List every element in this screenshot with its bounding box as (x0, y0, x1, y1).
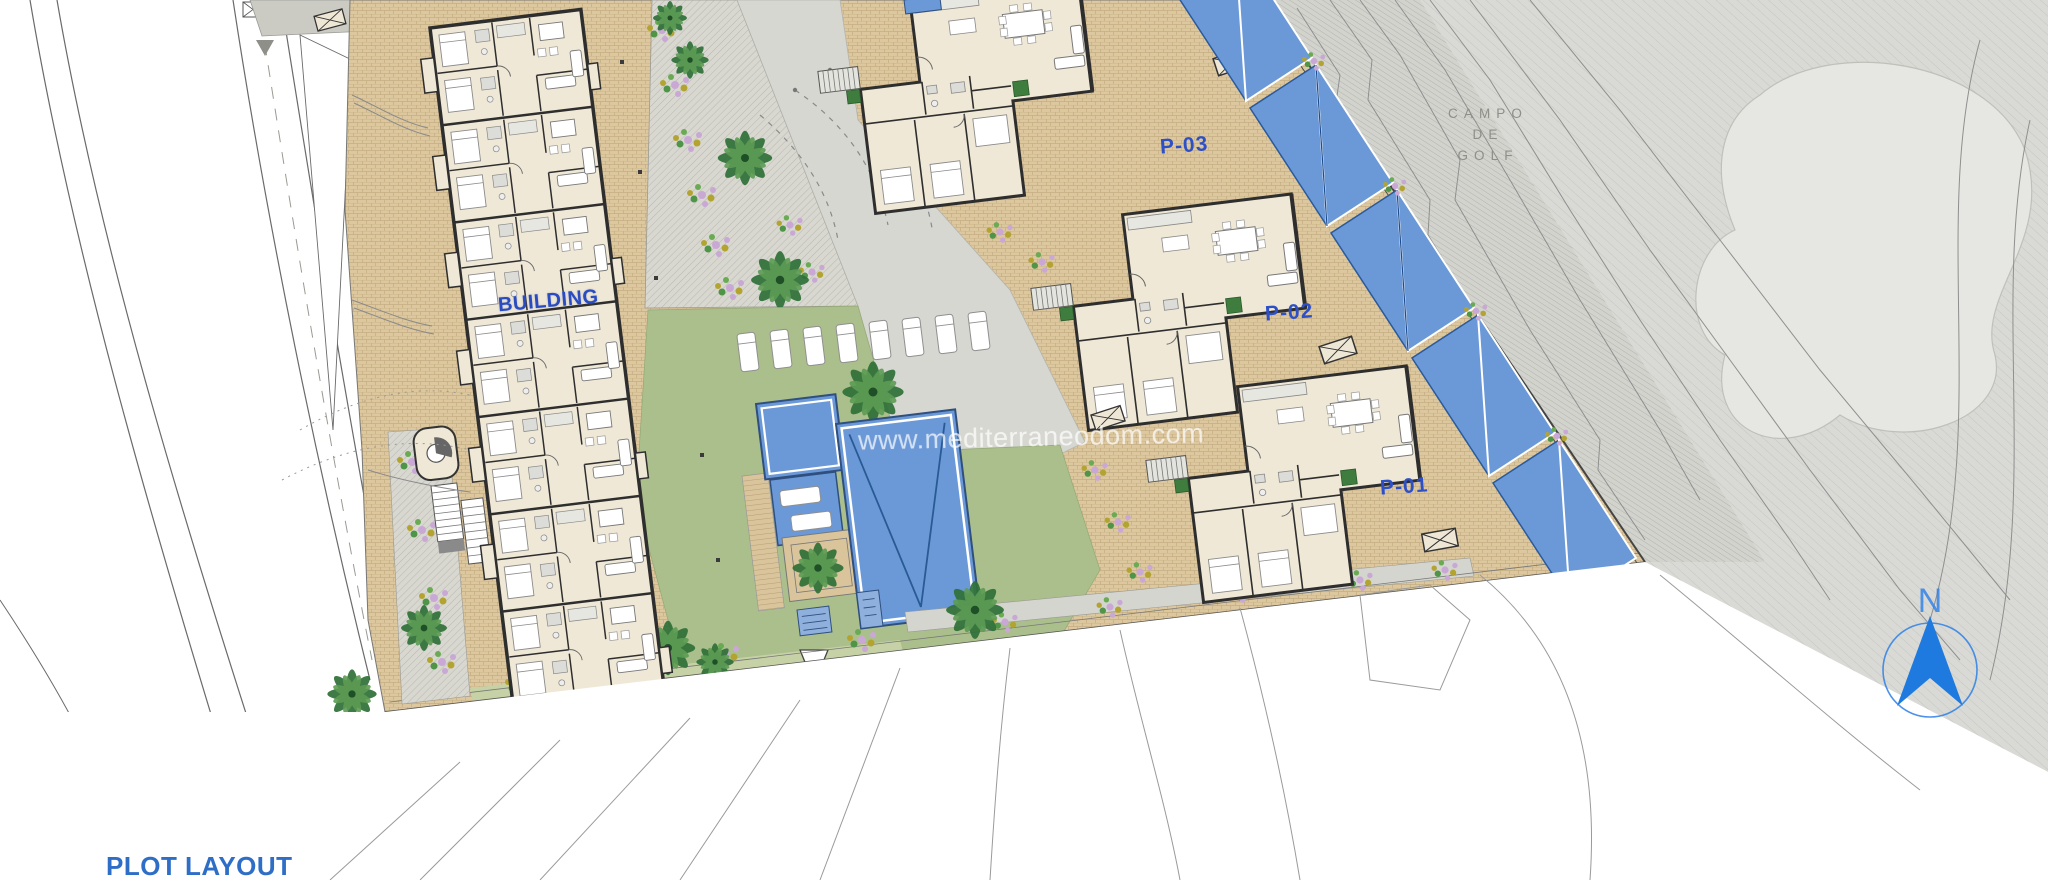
kids-pool (756, 394, 845, 479)
golf-course-label: CAMPO DE GOLF (1408, 104, 1568, 167)
lawn-palm-icon (842, 361, 903, 422)
north-letter: N (1918, 582, 1943, 620)
villa-label-p03: P-03 (1159, 132, 1209, 159)
villa-label-p01: P-01 (1379, 473, 1429, 500)
pool-steps (797, 606, 832, 636)
site-plan: N BUILDING P-03 P-02 P-01 CAMPO DE GOLF … (0, 0, 2048, 880)
road-arrow-marking (256, 40, 274, 56)
traffic-island (300, 35, 352, 430)
villa-label-p02: P-02 (1264, 299, 1314, 326)
plot-title: PLOT LAYOUT (106, 851, 293, 880)
